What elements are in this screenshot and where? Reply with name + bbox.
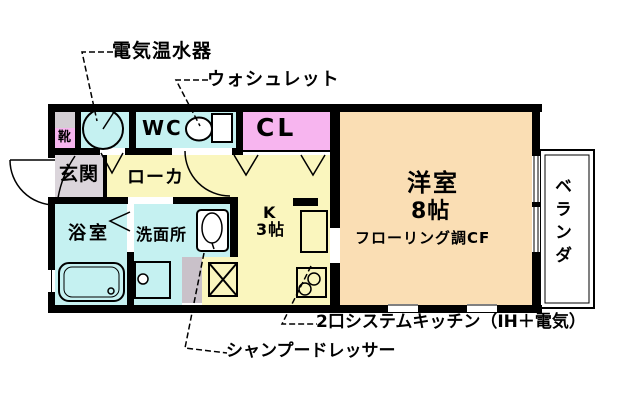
kitchen-floor-notch <box>202 257 238 305</box>
shoe-cabinet-top <box>55 111 75 128</box>
label-western-room-floor: フローリング調CF <box>355 231 490 246</box>
label-corridor: ローカ <box>127 169 184 187</box>
label-kitchen-size: 3帖 <box>256 222 285 238</box>
label-entrance: 玄関 <box>59 165 99 184</box>
veranda-sliding-door-lower <box>532 207 540 252</box>
label-electric-water-heater: 電気温水器 <box>112 42 212 61</box>
label-shampoo-dresser: シャンプードレッサー <box>226 343 396 360</box>
label-western-room-size: 8帖 <box>411 201 450 223</box>
label-veranda: ベランダ <box>552 177 569 269</box>
veranda-sliding-door-upper <box>532 156 540 202</box>
label-kitchen: K <box>263 205 276 221</box>
label-system-kitchen: 2口システムキッチン（IH＋電気） <box>316 314 586 331</box>
floorplan: 電気温水器 ウォシュレット 2口システムキッチン（IH＋電気） シャンプードレッ… <box>0 0 640 405</box>
label-western-room: 洋室 <box>407 171 459 195</box>
label-washroom: 洗面所 <box>136 227 187 243</box>
label-closet: CL <box>256 115 296 140</box>
label-washlet: ウォシュレット <box>207 71 340 89</box>
label-shoes: 靴 <box>58 131 71 144</box>
bathroom-floor <box>55 204 127 305</box>
label-wc: WC <box>142 118 183 138</box>
label-bathroom: 浴室 <box>68 225 110 243</box>
vanity-icon <box>197 210 228 251</box>
